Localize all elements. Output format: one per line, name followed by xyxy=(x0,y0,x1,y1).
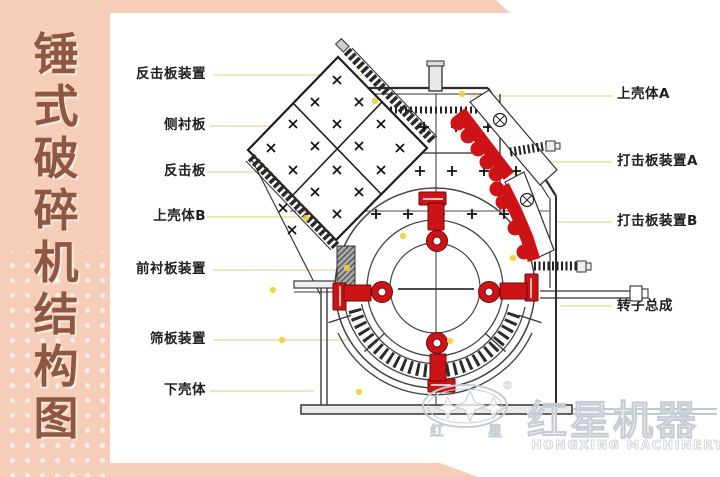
hammer-crusher-structure-infographic: 锤 式 破 碎 机 结 构 图 红星机器 HONGXING MACHINERY … xyxy=(0,0,720,477)
badge-char-xing: 星 xyxy=(488,424,502,440)
brand-badge-stars-icon: 红 星 xyxy=(418,380,528,440)
badge-char-hong: 红 xyxy=(430,423,444,440)
impact-plate-a xyxy=(451,90,561,185)
brand-watermark-en: HONGXING MACHINERY xyxy=(531,437,720,452)
